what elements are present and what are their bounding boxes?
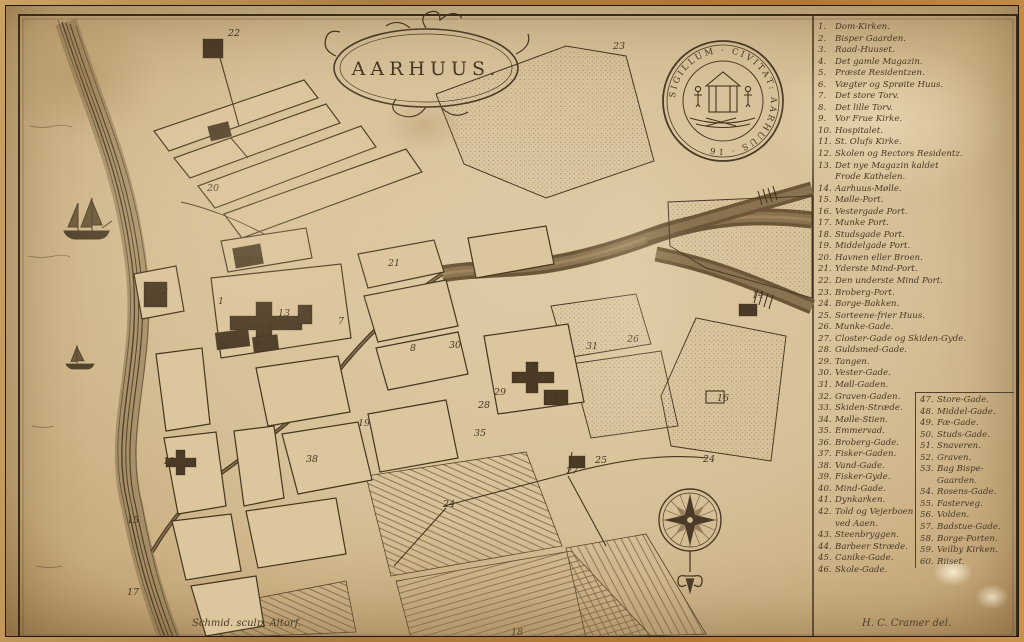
legend-item-number: 10. — [818, 126, 835, 138]
legend-item-label: Badstue-Gade. — [937, 522, 1014, 534]
map-number-label: 19 — [358, 418, 370, 429]
legend-item: 27.Closter-Gade og Skiden-Gyde. — [818, 334, 1016, 346]
legend-item-number: 47. — [920, 395, 937, 407]
legend-item-number: 37. — [818, 449, 835, 461]
legend-item-label: Riiset. — [937, 557, 1014, 569]
legend-item: 25.Sorteene-frier Huus. — [818, 311, 1016, 323]
legend-item-label: Graven. — [937, 453, 1014, 465]
legend-item-number: 12. — [818, 149, 835, 161]
map-number-label: 8 — [410, 343, 416, 354]
legend-item: 11.St. Olufs Kirke. — [818, 137, 1016, 149]
legend-item-number: 53. — [920, 464, 937, 487]
legend-item-number: 57. — [920, 522, 937, 534]
legend-item-number: 6. — [818, 80, 835, 92]
legend-item-number: 8. — [818, 103, 835, 115]
legend-item: 14.Aarhuus-Mølle. — [818, 184, 1016, 196]
map-sheet: 2223202121133654721830292891031261416242… — [5, 5, 1019, 637]
legend-item-number: 46. — [818, 565, 835, 577]
legend-item: 49.Fæ-Gade. — [920, 418, 1014, 430]
map-number-label: 35 — [474, 428, 486, 439]
legend-item-label: Aarhuus-Mølle. — [835, 184, 1016, 196]
legend-item: 21.Yderste Mind-Port. — [818, 264, 1016, 276]
legend-item: 58.Borge-Porten. — [920, 534, 1014, 546]
legend-item: 29.Tangen. — [818, 357, 1016, 369]
legend-item-number: 51. — [920, 441, 937, 453]
svg-text:SIGILLUM · CIVITAT: AARHUUS ·: SIGILLUM · CIVITAT: AARHUUS · 16 — [668, 46, 778, 156]
legend-panel: 1.Dom-Kirken.2.Bisper Gaarden.3.Raad-Huu… — [818, 22, 1016, 622]
map-number-label: 2 — [245, 256, 252, 267]
map-number-label: 5 — [232, 332, 238, 343]
legend-item: 1.Dom-Kirken. — [818, 22, 1016, 34]
map-number-label: 31 — [586, 341, 598, 352]
legend-item: 56.Volden. — [920, 510, 1014, 522]
legend-item-label: Den underste Mind Port. — [835, 276, 1016, 288]
legend-item-number: 33. — [818, 403, 835, 415]
legend-item-number: 52. — [920, 453, 937, 465]
legend-item-number: 31. — [818, 380, 835, 392]
legend-item-label: Vor Frue Kirke. — [835, 114, 1016, 126]
sea-ripples — [28, 125, 72, 567]
legend-item: 59.Veilby Kirken. — [920, 545, 1014, 557]
legend-item-number: 24. — [818, 299, 835, 311]
legend-item-label: Mølle-Port. — [835, 195, 1016, 207]
seal-ring-text: SIGILLUM · CIVITAT: AARHUUS · 16 — [668, 46, 778, 156]
legend-item: 15.Mølle-Port. — [818, 195, 1016, 207]
map-number-label: 38 — [306, 454, 318, 465]
legend-item: 5.Præste Residentzen. — [818, 68, 1016, 80]
legend-item-number: 5. — [818, 68, 835, 80]
legend-item: 17.Munke Port. — [818, 218, 1016, 230]
legend-item: 55.Fasterveg. — [920, 499, 1014, 511]
legend-item-number: 30. — [818, 368, 835, 380]
legend-item-number: 21. — [818, 264, 835, 276]
legend-item-label: Middel-Gade. — [937, 407, 1014, 419]
legend-item-number: 42. — [818, 507, 835, 530]
map-number-label: 9 — [530, 362, 536, 373]
map-number-label: 30 — [449, 340, 461, 351]
legend-item: 54.Rosens-Gade. — [920, 487, 1014, 499]
legend-item-label: Det nye Magazin kaldet Frode Kathelen. — [835, 161, 1016, 184]
legend-item-label: Bisper Gaarden. — [835, 34, 1016, 46]
legend-item-label: Raad-Huuset. — [835, 45, 1016, 57]
windmill-building — [739, 304, 757, 316]
legend-item-number: 27. — [818, 334, 835, 346]
legend-item-number: 48. — [920, 407, 937, 419]
legend-item-number: 22. — [818, 276, 835, 288]
legend-item-label: Det gamle Magazin. — [835, 57, 1016, 69]
coastline — [58, 20, 178, 637]
legend-item-number: 3. — [818, 45, 835, 57]
legend-item: 30.Vester-Gade. — [818, 368, 1016, 380]
legend-item: 23.Broberg-Port. — [818, 288, 1016, 300]
legend-item: 48.Middel-Gade. — [920, 407, 1014, 419]
legend-item-label: Borge-Bakken. — [835, 299, 1016, 311]
legend-item-number: 25. — [818, 311, 835, 323]
legend-item-number: 9. — [818, 114, 835, 126]
legend-item-label: Tangen. — [835, 357, 1016, 369]
map-number-label: 22 — [227, 28, 240, 39]
map-number-label: 21 — [387, 258, 400, 269]
legend-item: 51.Snaveren. — [920, 441, 1014, 453]
legend-item: 18.Studsgade Port. — [818, 230, 1016, 242]
legend-item-number: 49. — [920, 418, 937, 430]
legend-item-label: Vestergade Port. — [835, 207, 1016, 219]
fleur-de-lis-icon — [678, 551, 702, 592]
map-number-label: 23 — [612, 41, 625, 52]
map-number-label: 3 — [306, 304, 312, 315]
legend-item-label: Rosens-Gade. — [937, 487, 1014, 499]
map-number-label: 17 — [127, 587, 140, 598]
legend-item-number: 23. — [818, 288, 835, 300]
legend-item-number: 41. — [818, 495, 835, 507]
legend-item-label: Det lille Torv. — [835, 103, 1016, 115]
map-number-label: 20 — [206, 183, 219, 194]
legend-item-label: Hospitalet. — [835, 126, 1016, 138]
legend-item-number: 56. — [920, 510, 937, 522]
legend-item-number: 32. — [818, 392, 835, 404]
map-number-label: 14 — [752, 290, 764, 301]
legend-item-label: Fasterveg. — [937, 499, 1014, 511]
engraver-signature-left: Schmid. sculp. Altorf. — [192, 618, 301, 629]
map-number-label: 24 — [702, 454, 715, 465]
legend-item-number: 1. — [818, 22, 835, 34]
map-number-label: 28 — [477, 400, 490, 411]
legend-item: 22.Den underste Mind Port. — [818, 276, 1016, 288]
legend-item-number: 17. — [818, 218, 835, 230]
legend-item-number: 11. — [818, 137, 835, 149]
legend-item-label: Snaveren. — [937, 441, 1014, 453]
legend-item-number: 45. — [818, 553, 835, 565]
legend-item-number: 26. — [818, 322, 835, 334]
legend-item-label: Det store Torv. — [835, 91, 1016, 103]
map-number-label: 18 — [511, 627, 523, 637]
map-number-label: 25 — [594, 455, 607, 466]
legend-item-label: Broberg-Port. — [835, 288, 1016, 300]
legend-item-label: Vægter og Sprøite Huus. — [835, 80, 1016, 92]
legend-item-label: Vester-Gade. — [835, 368, 1016, 380]
legend-item-label: Studsgade Port. — [835, 230, 1016, 242]
legend-item: 10.Hospitalet. — [818, 126, 1016, 138]
legend-item-number: 44. — [818, 542, 835, 554]
legend-item-number: 40. — [818, 484, 835, 496]
legend-item-number: 20. — [818, 253, 835, 265]
legend-item-label: Møll-Gaden. — [835, 380, 1016, 392]
map-title: AARHUUS. — [351, 58, 501, 80]
legend-item-label: Yderste Mind-Port. — [835, 264, 1016, 276]
legend-column-2: 47.Store-Gade.48.Middel-Gade.49.Fæ-Gade.… — [915, 392, 1014, 568]
legend-item-label: Guldsmed-Gade. — [835, 345, 1016, 357]
legend-item: 53.Bag Bispe- Gaarden. — [920, 464, 1014, 487]
legend-item-number: 15. — [818, 195, 835, 207]
map-number-label: 13 — [278, 308, 290, 319]
legend-item: 31.Møll-Gaden. — [818, 380, 1016, 392]
legend-item: 20.Havnen eller Broen. — [818, 253, 1016, 265]
legend-item-number: 36. — [818, 438, 835, 450]
map-number-label: 16 — [717, 393, 729, 404]
legend-item-label: St. Olufs Kirke. — [835, 137, 1016, 149]
legend-item: 28.Guldsmed-Gade. — [818, 345, 1016, 357]
legend-item-number: 35. — [818, 426, 835, 438]
legend-item-label: Munke-Gade. — [835, 322, 1016, 334]
legend-item-label: Dom-Kirken. — [835, 22, 1016, 34]
legend-item-label: Sorteene-frier Huus. — [835, 311, 1016, 323]
legend-item-number: 28. — [818, 345, 835, 357]
legend-item-number: 54. — [920, 487, 937, 499]
legend-item-label: Middelgade Port. — [835, 241, 1016, 253]
legend-item-label: Skolen og Rectors Residentz. — [835, 149, 1016, 161]
legend-item: 12.Skolen og Rectors Residentz. — [818, 149, 1016, 161]
map-number-label: 7 — [338, 316, 345, 327]
legend-item-label: Munke Port. — [835, 218, 1016, 230]
framed-map-photo: 2223202121133654721830292891031261416242… — [0, 0, 1024, 642]
legend-item-number: 58. — [920, 534, 937, 546]
legend-item-label: Studs-Gade. — [937, 430, 1014, 442]
legend-item: 13.Det nye Magazin kaldet Frode Kathelen… — [818, 161, 1016, 184]
legend-item-number: 4. — [818, 57, 835, 69]
legend-item: 7.Det store Torv. — [818, 91, 1016, 103]
legend-item-label: Borge-Porten. — [937, 534, 1014, 546]
map-number-label: 27 — [565, 466, 579, 477]
map-number-label: 6 — [267, 321, 273, 332]
legend-item-number: 29. — [818, 357, 835, 369]
map-number-label: 26 — [626, 334, 639, 345]
map-number-label: 29 — [493, 387, 506, 398]
sailing-ship-icon — [66, 345, 94, 369]
legend-item: 60.Riiset. — [920, 557, 1014, 569]
legend-item-number: 14. — [818, 184, 835, 196]
legend-item: 3.Raad-Huuset. — [818, 45, 1016, 57]
legend-item: 8.Det lille Torv. — [818, 103, 1016, 115]
legend-item-label: Veilby Kirken. — [937, 545, 1014, 557]
legend-item: 19.Middelgade Port. — [818, 241, 1016, 253]
legend-item: 26.Munke-Gade. — [818, 322, 1016, 334]
city-seal: SIGILLUM · CIVITAT: AARHUUS · 16 — [663, 41, 783, 161]
legend-item-label: Fæ-Gade. — [937, 418, 1014, 430]
legend-item-label: Havnen eller Broen. — [835, 253, 1016, 265]
legend-item-label: Store-Gade. — [937, 395, 1014, 407]
map-number-label: 4 — [253, 337, 260, 348]
legend-item-number: 59. — [920, 545, 937, 557]
map-number-label: 10 — [554, 391, 566, 402]
legend-item-number: 16. — [818, 207, 835, 219]
legend-item-number: 7. — [818, 91, 835, 103]
legend-item: 16.Vestergade Port. — [818, 207, 1016, 219]
map-number-label: 11 — [163, 456, 175, 467]
legend-item-number: 2. — [818, 34, 835, 46]
legend-item-number: 43. — [818, 530, 835, 542]
map-number-label: 24 — [442, 499, 455, 510]
legend-item: 4.Det gamle Magazin. — [818, 57, 1016, 69]
legend-item-number: 19. — [818, 241, 835, 253]
map-number-label: 15 — [127, 515, 139, 526]
legend-item: 9.Vor Frue Kirke. — [818, 114, 1016, 126]
seal-gate-emblem — [690, 72, 755, 128]
legend-item: 24.Borge-Bakken. — [818, 299, 1016, 311]
legend-item-number: 39. — [818, 472, 835, 484]
map-number-label: 12 — [156, 286, 168, 297]
map-number-label: 1 — [218, 296, 224, 307]
legend-item-label: Closter-Gade og Skiden-Gyde. — [835, 334, 1016, 346]
legend-item-label: Bag Bispe- Gaarden. — [937, 464, 1014, 487]
legend-item-number: 18. — [818, 230, 835, 242]
legend-item-label: Præste Residentzen. — [835, 68, 1016, 80]
legend-item-number: 50. — [920, 430, 937, 442]
legend-item: 6.Vægter og Sprøite Huus. — [818, 80, 1016, 92]
legend-item: 57.Badstue-Gade. — [920, 522, 1014, 534]
legend-item-number: 13. — [818, 161, 835, 184]
legend-item-number: 55. — [920, 499, 937, 511]
legend-item: 50.Studs-Gade. — [920, 430, 1014, 442]
legend-item: 2.Bisper Gaarden. — [818, 34, 1016, 46]
legend-item: 52.Graven. — [920, 453, 1014, 465]
sailing-ship-icon — [64, 198, 112, 239]
legend-item: 47.Store-Gade. — [920, 395, 1014, 407]
legend-item-number: 38. — [818, 461, 835, 473]
legend-item-number: 60. — [920, 557, 937, 569]
legend-item-label: Volden. — [937, 510, 1014, 522]
legend-item-number: 34. — [818, 415, 835, 427]
